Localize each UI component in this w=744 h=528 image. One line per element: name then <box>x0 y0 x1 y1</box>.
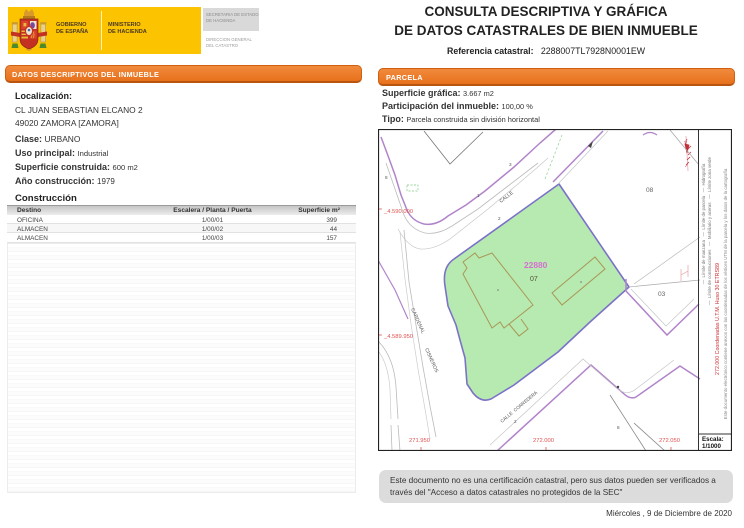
svg-text:272.050: 272.050 <box>659 438 680 444</box>
svg-text:272.000 Coordenadas U.T.M. Hus: 272.000 Coordenadas U.T.M. Huso 30 ETRS8… <box>715 263 721 375</box>
svg-text:271.950: 271.950 <box>409 438 430 444</box>
svg-text:1: 1 <box>477 193 480 198</box>
svg-text:8: 8 <box>385 175 388 180</box>
svg-text:8: 8 <box>617 425 620 430</box>
svg-text:Escala:: Escala: <box>702 436 724 443</box>
svg-text:3: 3 <box>509 162 512 167</box>
svg-text:08: 08 <box>646 187 654 194</box>
svg-text:272.000: 272.000 <box>533 438 554 444</box>
svg-text:_4.589.950: _4.589.950 <box>383 334 413 340</box>
svg-text:_4.590.000: _4.590.000 <box>383 209 413 215</box>
svg-text:2: 2 <box>498 216 501 221</box>
svg-text:— Límite de construcciones: — Límite de construcciones — Mobiliario … <box>707 157 712 305</box>
svg-text:2: 2 <box>514 419 517 424</box>
svg-text:07: 07 <box>530 276 538 283</box>
svg-text:Este documento electrónico con: Este documento electrónico contiene anex… <box>723 168 728 419</box>
svg-text:22880: 22880 <box>524 260 548 270</box>
svg-text:1/1000: 1/1000 <box>702 443 721 450</box>
svg-text:03: 03 <box>658 291 666 298</box>
svg-text:— Límite de manzana — Lími: — Límite de manzana — Límite de parcela … <box>701 163 706 284</box>
